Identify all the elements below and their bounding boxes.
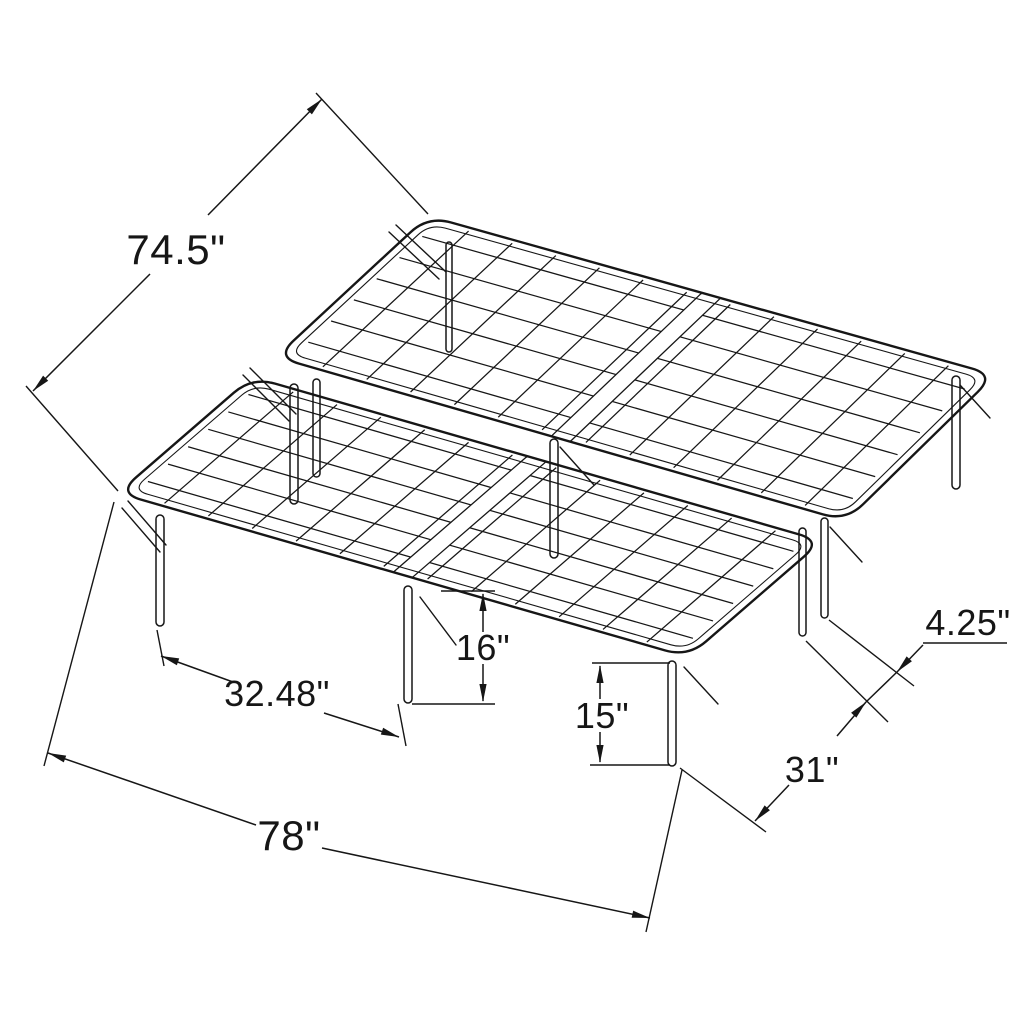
seam-leg-gap-label: 4.25" [925, 602, 1010, 643]
frame-length-label: 78" [257, 812, 320, 859]
side-leg-spacing-label: 31" [785, 749, 839, 790]
bed-frame-drawing: 74.5" 78" 32.48" 16" 15" 4.25" 31" [0, 0, 1024, 1024]
front-leg-spacing-label: 32.48" [224, 673, 330, 714]
dimension-diagram: 74.5" 78" 32.48" 16" 15" 4.25" 31" [0, 0, 1024, 1024]
leg-height-label: 15" [575, 695, 629, 736]
canvas-background [0, 0, 1024, 1024]
overall-height-label: 16" [456, 627, 510, 668]
frame-width-label: 74.5" [126, 226, 225, 273]
